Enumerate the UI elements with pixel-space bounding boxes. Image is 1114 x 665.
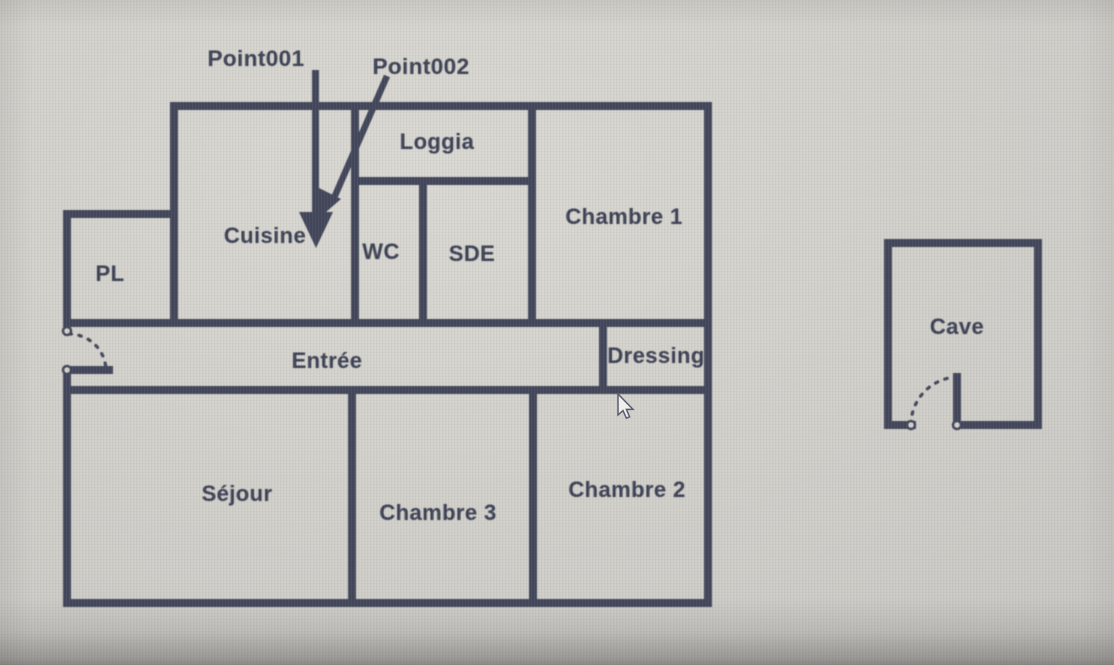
room-label-cuisine: Cuisine (224, 223, 306, 249)
room-label-sejour: Séjour (202, 481, 273, 507)
room-label-dressing: Dressing (607, 343, 704, 369)
room-label-pl: PL (96, 261, 125, 287)
entrance-door-arc-icon (69, 334, 106, 370)
wall-sejour-chambre3 (348, 386, 356, 607)
wall-top (170, 102, 712, 110)
annotation-arrow-point001 (299, 70, 333, 248)
entrance-hinge-icon (63, 327, 71, 335)
floor-plan-screen: Point001 Point002 Loggia Cuisine WC SDE … (0, 0, 1114, 665)
wall-pl-top (63, 210, 178, 218)
room-label-entree: Entrée (292, 348, 363, 374)
wall-entree-top (63, 319, 712, 327)
arrow-down-icon (312, 70, 319, 215)
wall-entree-bottom (63, 386, 712, 394)
room-label-chambre2: Chambre 2 (568, 477, 685, 503)
room-label-wc: WC (362, 239, 399, 265)
cave-hinge-icon (953, 421, 961, 429)
cave-wall-left (884, 239, 892, 429)
room-label-cave: Cave (930, 314, 984, 340)
cave-wall-bottom-right (953, 421, 1042, 429)
wall-loggia-bottom (351, 177, 536, 185)
annotation-label-point001[interactable]: Point001 (208, 46, 305, 72)
cave-wall-top (884, 239, 1042, 247)
wall-chambre3-chambre2 (529, 386, 537, 607)
wall-pl-left (63, 210, 71, 332)
room-label-sde: SDE (449, 241, 495, 267)
room-label-loggia: Loggia (400, 129, 475, 155)
floor-plan-canvas[interactable]: Point001 Point002 Loggia Cuisine WC SDE … (0, 0, 1114, 665)
room-label-chambre3: Chambre 3 (379, 500, 496, 526)
cave-door-arc-icon (911, 377, 957, 423)
wall-bottom (63, 599, 712, 607)
wall-left-lower (63, 366, 71, 607)
wall-wc-sde (419, 177, 427, 327)
wall-dressing-left (599, 319, 607, 394)
cave-hinge-icon (907, 421, 915, 429)
entrance-hinge-icon (63, 366, 71, 374)
room-label-chambre1: Chambre 1 (565, 204, 682, 230)
cave-wall-right (1034, 239, 1042, 429)
annotation-label-point002[interactable]: Point002 (373, 54, 470, 80)
wall-right (704, 102, 712, 607)
wall-chambre1-left (528, 102, 536, 327)
